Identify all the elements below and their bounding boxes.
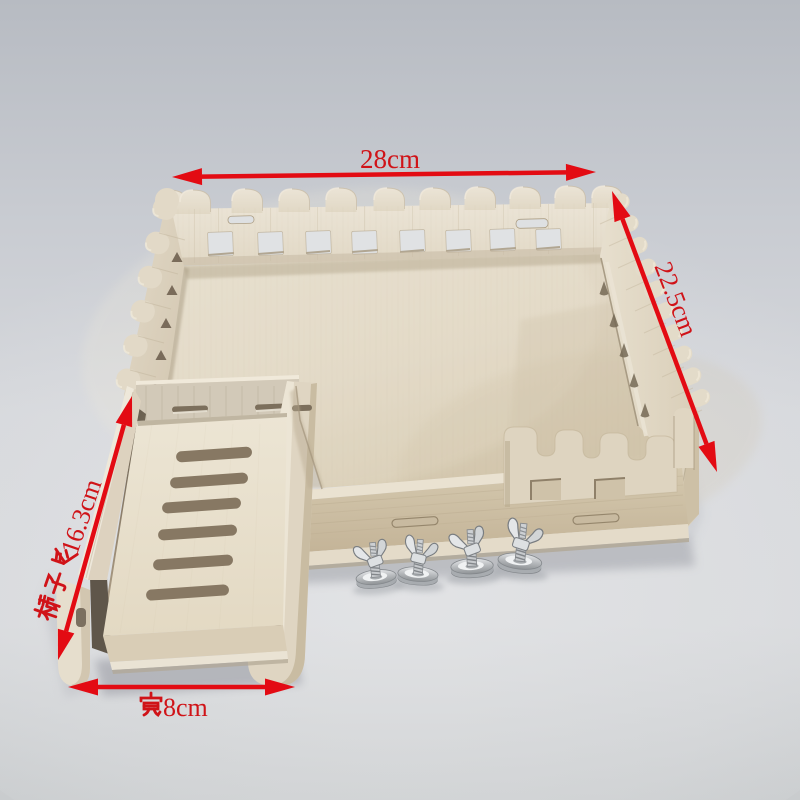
svg-text:28cm: 28cm	[360, 144, 420, 174]
svg-text:8cm: 8cm	[163, 693, 208, 722]
